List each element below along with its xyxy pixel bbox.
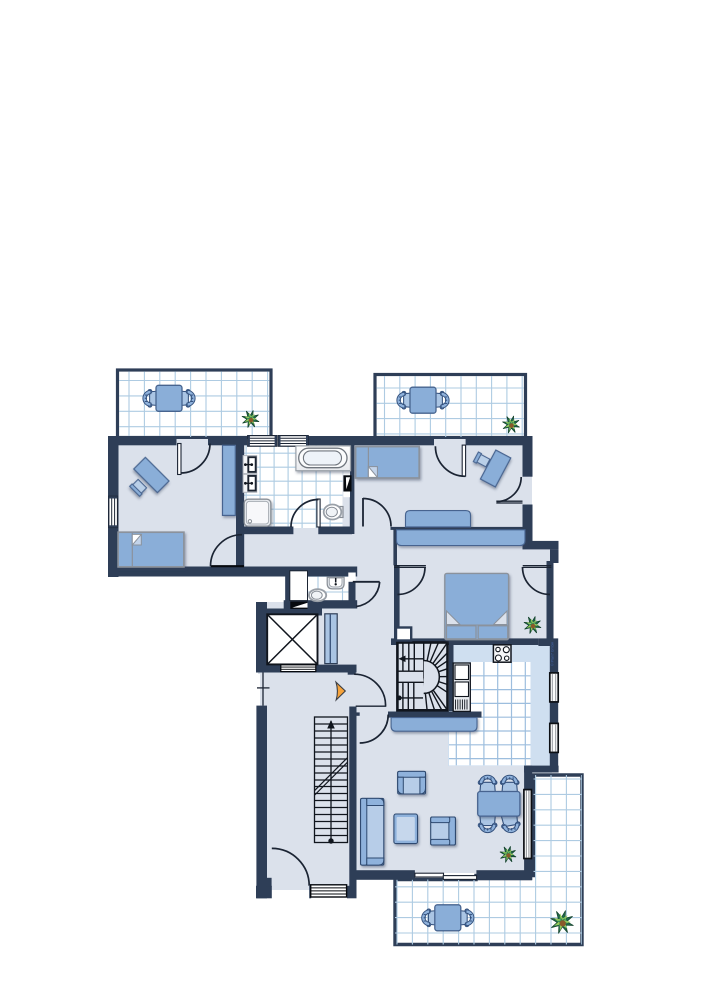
svg-text:© Plan7 GmbH: © Plan7 GmbH — [551, 641, 555, 666]
